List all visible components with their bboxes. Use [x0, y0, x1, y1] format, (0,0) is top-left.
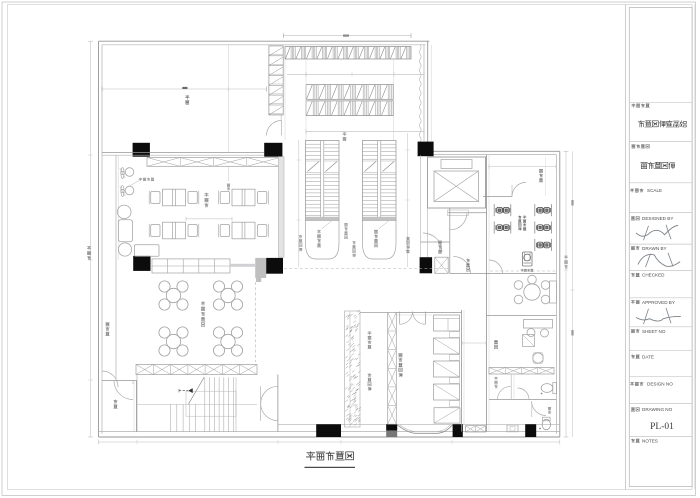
- svg-text:PL-01: PL-01: [650, 422, 674, 432]
- svg-text:DRAWN BY: DRAWN BY: [642, 246, 667, 251]
- svg-text:CHECKED: CHECKED: [642, 273, 665, 278]
- svg-text:DESIGNED BY: DESIGNED BY: [642, 216, 673, 221]
- svg-text:NOTES: NOTES: [642, 439, 658, 444]
- svg-text:DESIGN NO: DESIGN NO: [647, 382, 673, 387]
- svg-text:DATE: DATE: [642, 354, 654, 359]
- svg-text:SCALE: SCALE: [647, 188, 662, 193]
- svg-text:SHEET NO: SHEET NO: [642, 329, 666, 334]
- svg-text:DRAWING NO: DRAWING NO: [642, 407, 673, 412]
- svg-text:APPROVED BY: APPROVED BY: [642, 300, 675, 305]
